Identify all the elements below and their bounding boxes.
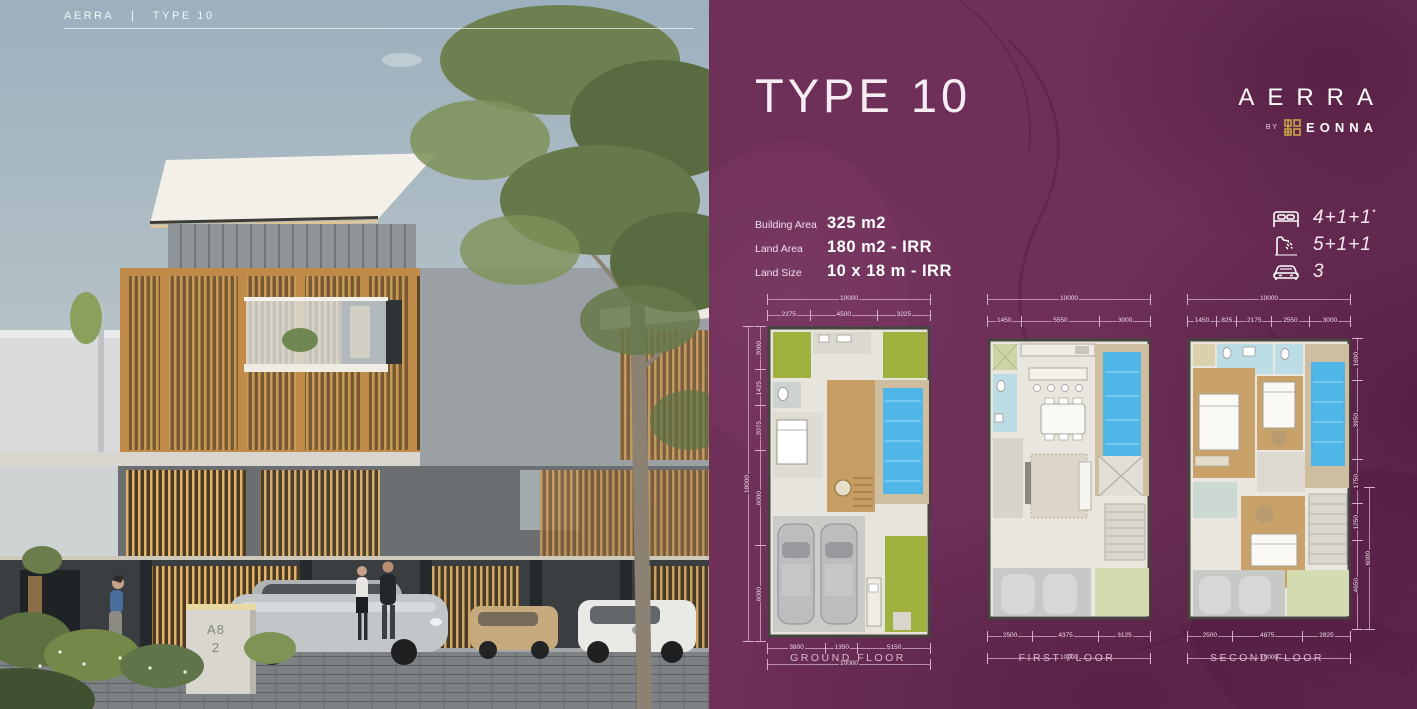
brand-name: AERRA — [1238, 84, 1386, 112]
dimension-right-outer: 6000 — [1364, 338, 1375, 630]
dimension-top-total: 10000 — [987, 294, 1151, 305]
brand-lockup: AERRA BY EONNA — [1238, 84, 1373, 136]
spec-label: Building Area — [755, 219, 827, 231]
second-floor-figure: 10000 1450825217525503000 — [1185, 294, 1375, 674]
unit-sign-line2: 2 — [196, 640, 236, 655]
spec-value: 10 x 18 m - IRR — [827, 262, 952, 281]
dimension-top-segments: 1450825217525503000 — [1187, 316, 1351, 327]
dimension-left-total: 18000 — [743, 326, 754, 642]
spec-value: 325 m2 — [827, 214, 886, 233]
dimension-top-total: 10000 — [767, 294, 931, 305]
first-floor-plan — [987, 338, 1151, 630]
second-floor-plan — [1187, 338, 1351, 630]
first-floor-figure: 10000 145055503000 — [985, 294, 1153, 674]
brand-partner-name: EONNA — [1306, 120, 1378, 135]
amenity-list: 4+1+1* 5+1+1 — [1271, 204, 1376, 285]
spec-value: 180 m2 - IRR — [827, 238, 932, 257]
dimension-top-total: 10000 — [1187, 294, 1351, 305]
dimension-right-segments: 16003950175012504650 — [1352, 338, 1363, 630]
house-render-photo: AERRA | TYPE 10 A8 2 — [0, 0, 709, 709]
floor-label-ground: GROUND FLOOR — [766, 652, 930, 664]
spec-row-land-area: Land Area 180 m2 - IRR — [755, 238, 952, 257]
amenity-cars: 3 — [1271, 258, 1376, 285]
floor-label-second: SECOND FLOOR — [1185, 652, 1349, 664]
bed-icon — [1271, 208, 1301, 228]
eonna-logo-icon — [1284, 119, 1301, 136]
bedroom-count: 4+1+1* — [1313, 207, 1376, 229]
spec-label: Land Area — [755, 243, 827, 255]
page-title: TYPE 10 — [755, 68, 971, 123]
unit-sign-line1: A8 — [196, 622, 236, 637]
spec-row-building-area: Building Area 325 m2 — [755, 214, 952, 233]
brand-by-label: BY — [1266, 124, 1279, 131]
dimension-bottom-segments: 250043753125 — [987, 631, 1151, 642]
spec-label: Land Size — [755, 267, 827, 279]
spec-row-land-size: Land Size 10 x 18 m - IRR — [755, 262, 952, 281]
car-icon — [1271, 263, 1301, 281]
car-count: 3 — [1313, 261, 1325, 283]
spec-list: Building Area 325 m2 Land Area 180 m2 - … — [755, 214, 952, 286]
house-scene-art — [0, 0, 709, 709]
dimension-left-segments: 20001425207560006000 — [755, 326, 766, 642]
photo-header-divider: | — [131, 10, 136, 22]
brochure-page: AERRA | TYPE 10 A8 2 TYPE 10 AERRA BY — [0, 0, 1417, 709]
photo-header: AERRA | TYPE 10 — [64, 10, 694, 29]
amenity-bathrooms: 5+1+1 — [1271, 231, 1376, 258]
header-rule — [64, 28, 694, 29]
floor-label-first: FIRST FLOOR — [985, 652, 1149, 664]
photo-header-brand: AERRA — [64, 10, 114, 22]
dimension-top-segments: 227545003225 — [767, 310, 931, 321]
ground-floor-plan — [767, 326, 931, 642]
amenity-bedrooms: 4+1+1* — [1271, 204, 1376, 231]
photo-header-page: TYPE 10 — [153, 10, 215, 22]
dimension-top-segments: 145055503000 — [987, 316, 1151, 327]
bathroom-count: 5+1+1 — [1313, 234, 1372, 256]
shower-icon — [1271, 234, 1301, 256]
ground-floor-figure: 10000 227545003225 18000 200014252075600… — [743, 294, 933, 674]
dimension-bottom-segments: 250048752825 — [1187, 631, 1351, 642]
